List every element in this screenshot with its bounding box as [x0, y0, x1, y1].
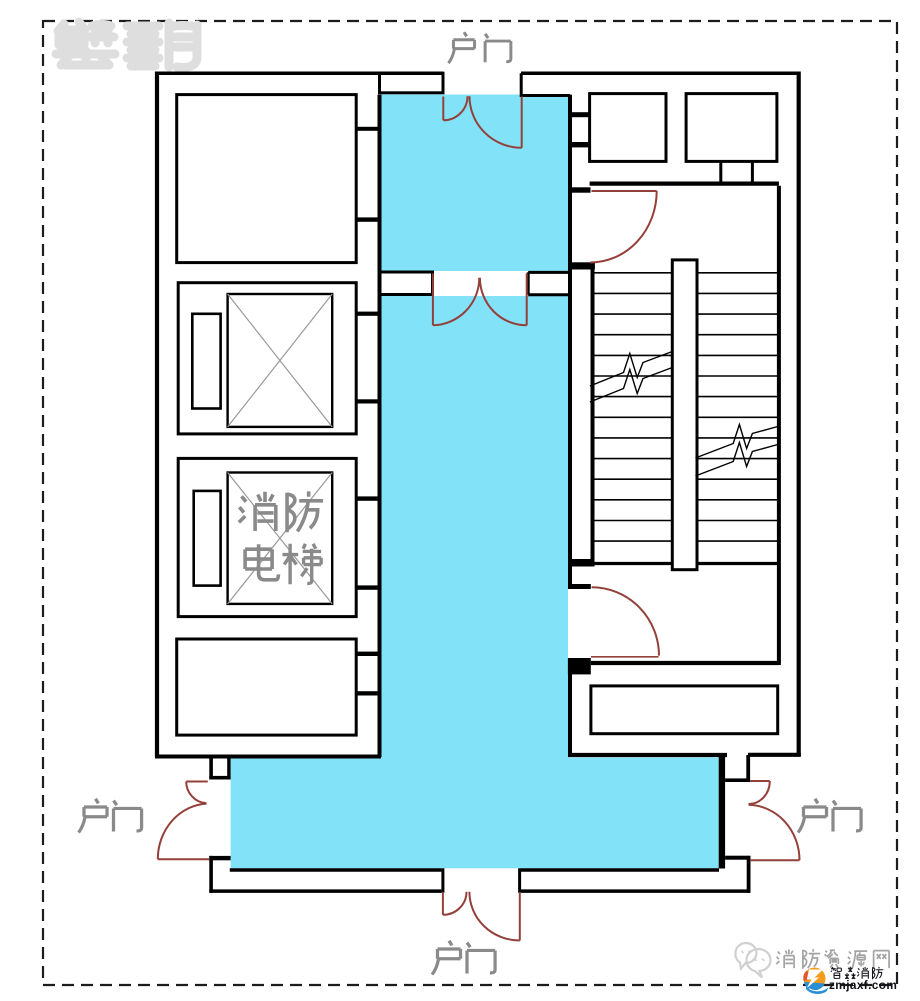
svg-text:zmjaxf.com: zmjaxf.com: [829, 978, 897, 992]
